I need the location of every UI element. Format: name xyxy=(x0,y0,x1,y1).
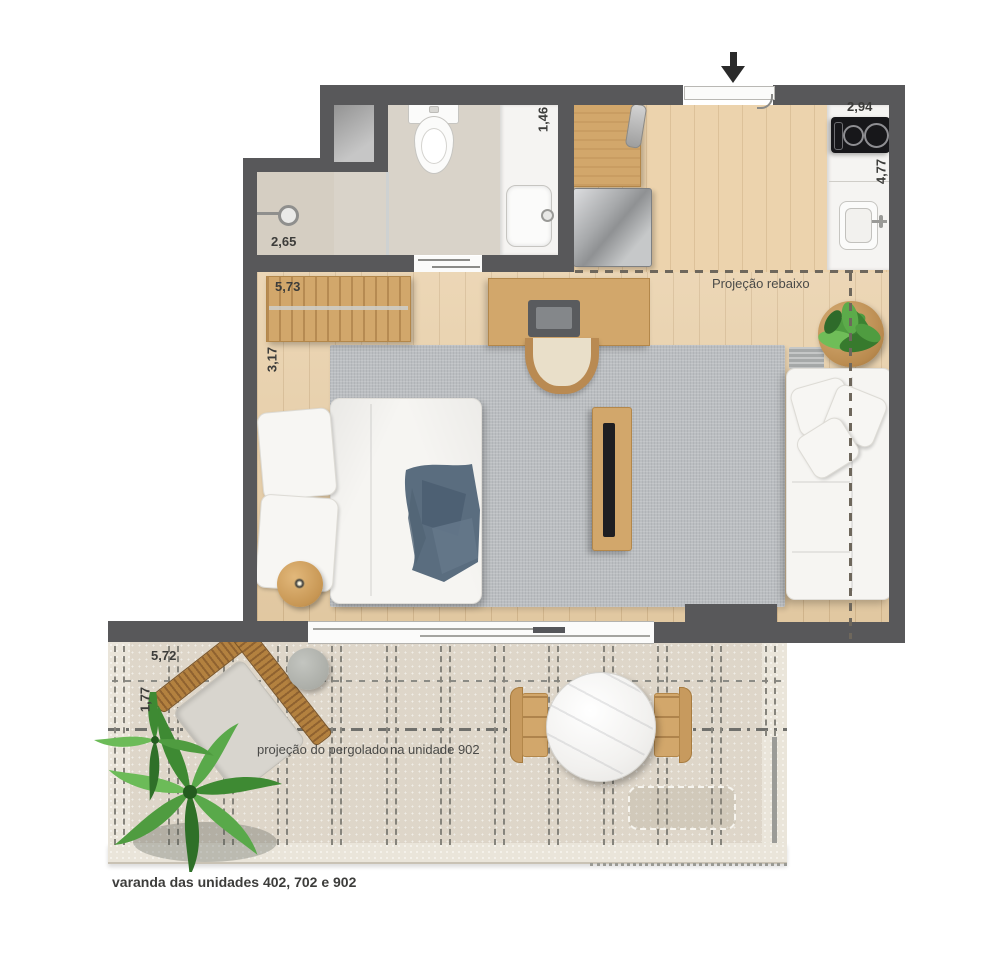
wall-bath-right xyxy=(558,105,574,255)
dining-chair-left xyxy=(510,687,548,761)
burner-icon xyxy=(864,123,889,148)
shaft xyxy=(334,105,374,162)
door-leaf xyxy=(533,627,565,633)
bed-pillow xyxy=(256,407,337,501)
dim-terrace-width: 5,72 xyxy=(151,648,176,663)
dim-shower: 2,65 xyxy=(271,234,296,249)
wall-bottom-step xyxy=(685,604,777,622)
dim-room-width: 3,17 xyxy=(265,336,280,384)
door-track-line xyxy=(420,635,650,637)
toilet-seat xyxy=(421,128,447,164)
sofa-seat-seam xyxy=(792,551,850,553)
entry-arrow-icon xyxy=(730,52,737,67)
entry-arrow-icon-head xyxy=(721,66,745,83)
bathroom-sliding-door xyxy=(414,256,482,272)
annotation-rebaixo: Projeção rebaixo xyxy=(712,276,810,291)
cooktop-控制-panel xyxy=(834,122,843,150)
kitchen-faucet-icon xyxy=(879,215,883,228)
wall-bottom-right xyxy=(654,622,905,643)
terrace-dotted-edge xyxy=(590,863,787,866)
rebaixo-projection-line xyxy=(575,270,889,273)
candle-icon xyxy=(294,578,305,589)
terrace-drain-line xyxy=(772,737,777,843)
dining-chair-right xyxy=(652,687,690,761)
rebaixo-projection-line xyxy=(849,273,852,639)
tv xyxy=(603,423,615,537)
wardrobe-rail xyxy=(269,306,408,310)
marble-veins xyxy=(547,673,653,779)
plan-caption: varanda das unidades 402, 702 e 902 xyxy=(112,874,356,890)
chair-seat xyxy=(522,693,548,757)
wall-top-right xyxy=(773,85,905,105)
burner-icon xyxy=(843,125,864,146)
annotation-pergolado: projeção do pergolado na unidade 902 xyxy=(257,742,480,757)
door-panel-line xyxy=(418,259,470,261)
door-track-line xyxy=(313,628,543,630)
bench-projection-outline xyxy=(628,786,736,830)
laptop xyxy=(528,300,580,337)
palm-tree-icon xyxy=(85,692,290,872)
chair-seat xyxy=(654,693,680,757)
bathroom-faucet-icon xyxy=(541,209,554,222)
dim-closet: 5,73 xyxy=(275,279,300,294)
washer-dryer xyxy=(573,188,652,267)
dim-kitchen-width: 2,94 xyxy=(847,99,872,114)
dining-table xyxy=(546,672,656,782)
kitchen-sink-basin xyxy=(845,208,872,243)
wall-terrace-top xyxy=(108,621,308,642)
kitchen-sink xyxy=(839,201,878,250)
wall-bath-bottom-a xyxy=(257,255,414,272)
floor-plan: 2,65 5,73 3,17 1,46 2,94 4,77 5,72 1,77 … xyxy=(0,0,1000,972)
wall-left xyxy=(243,158,257,642)
bedside-table xyxy=(277,561,323,607)
shower-glass-partition xyxy=(386,172,389,255)
laptop-screen xyxy=(536,307,572,329)
sofa-seat-seam xyxy=(792,481,850,483)
wall-bath-bottom-b xyxy=(482,255,574,272)
outdoor-side-table xyxy=(287,648,329,690)
bed-duvet-crease xyxy=(370,404,372,596)
toilet-flush-button xyxy=(429,106,439,113)
shower-head-icon xyxy=(278,205,299,226)
dim-bath-counter: 1,46 xyxy=(536,96,551,144)
door-panel-line xyxy=(432,266,480,268)
blue-blanket xyxy=(392,458,487,588)
balcony-sliding-door xyxy=(308,621,654,644)
chair-back xyxy=(679,687,692,763)
dim-terrace-depth: 1,77 xyxy=(138,676,153,724)
dim-kitchen-depth: 4,77 xyxy=(874,148,889,196)
wall-right xyxy=(889,85,905,643)
pergola-post-line xyxy=(765,646,776,736)
pergola-post-line xyxy=(494,646,505,845)
wall-top-left xyxy=(320,85,683,105)
